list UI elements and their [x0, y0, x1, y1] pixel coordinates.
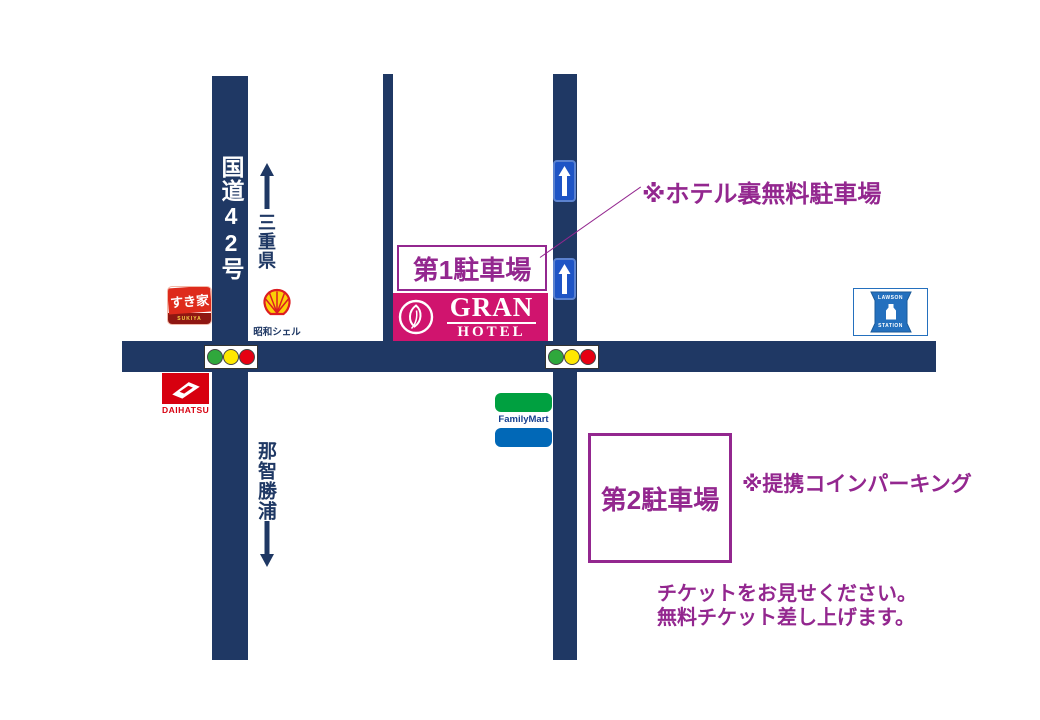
- lawson-shield-icon: LAWSON STATION: [868, 291, 914, 333]
- traffic-light-green: [548, 349, 564, 365]
- traffic-light: [545, 345, 599, 369]
- north-arrow-icon: [259, 163, 275, 209]
- lawson-text-bottom: STATION: [868, 323, 914, 329]
- south-arrow-icon: [259, 521, 275, 567]
- hotel-access-map: 国道42号 三重県 すき家 SUKIYA 昭和シェル 第1駐車場 GRAN HO…: [0, 0, 1040, 720]
- ticket-note-line1: チケットをお見せください。: [657, 582, 917, 606]
- route42-label: 国道42号: [212, 152, 248, 284]
- parking1-label: 第1駐車場: [413, 250, 531, 287]
- ticket-note-line2: 無料チケット差し上げます。: [657, 606, 917, 630]
- ticket-note: チケットをお見せください。 無料チケット差し上げます。: [657, 582, 917, 630]
- shell-icon: [261, 288, 293, 318]
- parking1-box: 第1駐車場: [397, 245, 547, 291]
- sukiya-name: すき家: [168, 287, 211, 314]
- one-way-arrow-icon: [558, 264, 571, 294]
- gran-hotel-banner: GRAN HOTEL: [393, 293, 548, 341]
- hotel-name: GRAN: [447, 294, 537, 324]
- road-side-street: [383, 74, 393, 341]
- familymart-name: FamilyMart: [495, 414, 552, 425]
- daihatsu-name: DAIHATSU: [162, 405, 209, 415]
- shell-name: 昭和シェル: [253, 324, 301, 338]
- parking2-box: 第2駐車場: [588, 433, 732, 563]
- traffic-light-yellow: [223, 349, 239, 365]
- back-parking-note: ※ホテル裏無料駐車場: [642, 174, 881, 209]
- familymart-blue-bar: [495, 428, 552, 447]
- sukiya-logo: すき家 SUKIYA: [168, 287, 211, 324]
- parking2-label: 第2駐車場: [601, 480, 719, 517]
- direction-south-label: 那智勝浦: [255, 441, 279, 521]
- one-way-arrow-sign: [553, 258, 576, 300]
- hotel-subname: HOTEL: [435, 325, 548, 340]
- lawson-text-top: LAWSON: [868, 295, 914, 301]
- lawson-landmark: LAWSON STATION: [853, 288, 928, 336]
- traffic-light-green: [207, 349, 223, 365]
- direction-north-label: 三重県: [255, 213, 279, 270]
- gran-leaf-icon: [397, 298, 435, 336]
- traffic-light-red: [580, 349, 596, 365]
- showa-shell-landmark: 昭和シェル: [253, 288, 301, 333]
- daihatsu-landmark: DAIHATSU: [162, 373, 209, 415]
- traffic-light: [204, 345, 258, 369]
- traffic-light-red: [239, 349, 255, 365]
- familymart-green-bar: [495, 393, 552, 412]
- one-way-arrow-icon: [558, 166, 571, 196]
- coin-parking-note: ※提携コインパーキング: [742, 468, 972, 498]
- daihatsu-icon: [162, 373, 209, 404]
- sukiya-romaji: SUKIYA: [168, 313, 211, 324]
- traffic-light-yellow: [564, 349, 580, 365]
- one-way-arrow-sign: [553, 160, 576, 202]
- familymart-landmark: FamilyMart: [495, 393, 552, 447]
